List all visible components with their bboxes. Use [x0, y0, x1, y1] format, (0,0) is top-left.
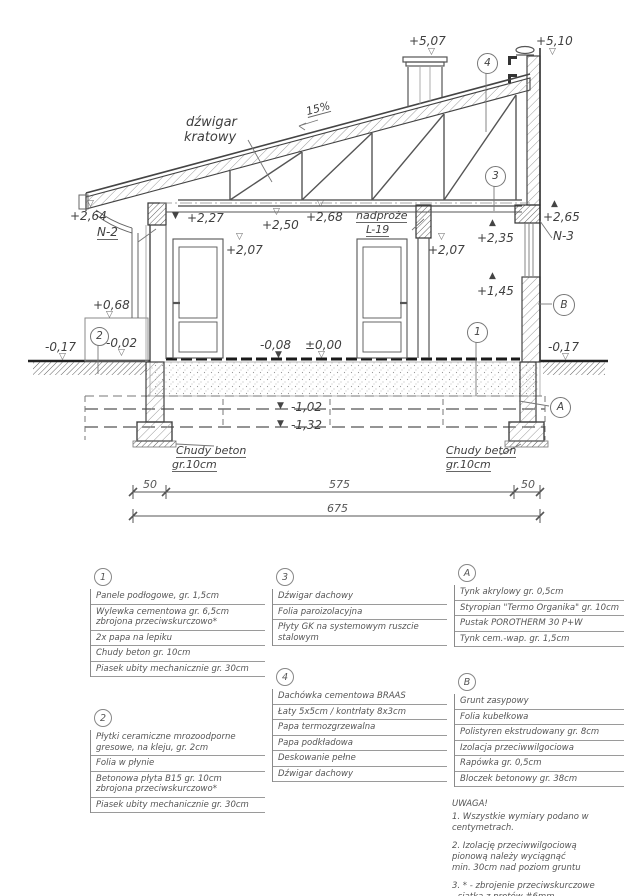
legend-row-text: Dźwigar dachowy — [278, 591, 447, 602]
level-marker-filled-icon: ▼ — [275, 351, 282, 360]
level-marker-open-icon: ▽ — [273, 208, 280, 217]
lintel-label-line1: nadproże — [356, 210, 407, 223]
legend-row-text: Wylewka cementowa gr. 6,5cm — [96, 607, 265, 618]
door-right — [357, 239, 407, 358]
level-marker-open-icon: ▽ — [317, 200, 324, 209]
legend-row-text: Piasek ubity mechanicznie gr. 30cm — [96, 664, 265, 675]
note-2-line2: pionową należy wyciągnąć — [452, 852, 624, 863]
legend-item-2: 2 Płytki ceramiczne mrozoodpornegresowe,… — [88, 709, 265, 813]
left-wall — [146, 203, 166, 362]
legend-circle-B: B — [458, 673, 476, 691]
level-marker-open-icon: ▽ — [118, 349, 125, 358]
legend-row: Folia kubełkowa — [455, 710, 624, 726]
legend-row-text: Płytki ceramiczne mrozoodporne — [96, 732, 265, 743]
level-marker-open-icon: ▽ — [318, 351, 325, 360]
legend-item-A: A Tynk akrylowy gr. 0,5cm Styropian "Ter… — [452, 564, 624, 647]
lean-concrete-label-left-line1: Chudy beton — [176, 445, 246, 458]
legend-row: Deskowanie pełne — [273, 751, 447, 767]
note-3-line2: - siatka z prętów #6mm — [452, 892, 624, 896]
legend-row: Betonowa płyta B15 gr. 10cmzbrojona prze… — [91, 772, 265, 798]
level-marker-filled-icon: ▲ — [489, 272, 496, 281]
label-n3: N-3 — [553, 230, 574, 242]
legend-row-text: zbrojona przeciwskurczowo* — [96, 617, 265, 628]
legend-row-text: Betonowa płyta B15 gr. 10cm — [96, 774, 265, 785]
legend-row: Folia w płynie — [91, 756, 265, 772]
legend-row: Łaty 5x5cm / kontrłaty 8x3cm — [273, 705, 447, 721]
legend-item-1: 1 Panele podłogowe, gr. 1,5cm Wylewka ce… — [88, 568, 265, 677]
legend-row-text: Rapówka gr. 0,5cm — [460, 758, 624, 769]
legend-row: Panele podłogowe, gr. 1,5cm — [91, 589, 265, 605]
dim-575: 575 — [329, 479, 350, 490]
legend-row-text: Tynk akrylowy gr. 0,5cm — [460, 587, 624, 598]
dim-50-left: 50 — [143, 479, 157, 490]
legend-row-text: Grunt zasypowy — [460, 696, 624, 707]
note-2-line1: 2. Izolację przeciwwilgociową — [452, 841, 624, 852]
level-plus250: +2,50 — [262, 219, 299, 231]
callout-4: 4 — [477, 53, 498, 74]
legend-row: Polistyren ekstrudowany gr. 8cm — [455, 725, 624, 741]
level-marker-open-icon: ▽ — [428, 48, 435, 57]
label-n2: N-2 — [97, 226, 118, 240]
legend-row-text: Łaty 5x5cm / kontrłaty 8x3cm — [278, 707, 447, 718]
level-minus102: -1,02 — [291, 401, 322, 413]
legend-row: Dźwigar dachowy — [273, 767, 447, 783]
dim-50-right: 50 — [521, 479, 535, 490]
legend-row-text: stalowym — [278, 633, 447, 644]
legend-row-text: Styropian "Termo Organika" gr. 10cm — [460, 603, 624, 614]
section-linework — [0, 0, 634, 545]
legend-row: Dachówka cementowa BRAAS — [273, 689, 447, 705]
legend-row-text: Polistyren ekstrudowany gr. 8cm — [460, 727, 624, 738]
note-3-line1: 3. * - zbrojenie przeciwskurczowe — [452, 881, 624, 892]
level-plus507: +5,07 — [409, 35, 446, 47]
level-marker-filled-icon: ▼ — [277, 420, 284, 429]
legend-row-text: Folia w płynie — [96, 758, 265, 769]
legend-row: Płytki ceramiczne mrozoodpornegresowe, n… — [91, 730, 265, 756]
legend-row-text: Bloczek betonowy gr. 38cm — [460, 774, 624, 785]
level-marker-filled-icon: ▼ — [172, 212, 179, 221]
legend-row-text: gresowe, na kleju, gr. 2cm — [96, 743, 265, 754]
legend-row-text: Piasek ubity mechanicznie gr. 30cm — [96, 800, 265, 811]
truss-label-line1: dźwigar — [186, 116, 237, 129]
legend-row: Papa termozgrzewalna — [273, 720, 447, 736]
note-1: 1. Wszystkie wymiary podano w centymetra… — [452, 812, 624, 834]
level-plus264: +2,64 — [70, 210, 107, 222]
level-plus510: +5,10 — [536, 35, 573, 47]
legend-row-text: Deskowanie pełne — [278, 753, 447, 764]
legend-row: Tynk cem.-wap. gr. 1,5cm — [455, 632, 624, 648]
lean-concrete-label-right-line1: Chudy beton — [446, 445, 516, 458]
legend-row: Piasek ubity mechanicznie gr. 30cm — [91, 798, 265, 814]
level-marker-filled-icon: ▲ — [551, 200, 558, 209]
level-plus227: +2,27 — [187, 212, 224, 224]
chimney — [403, 57, 447, 107]
lean-concrete-label-left-line2: gr.10cm — [172, 459, 217, 472]
legend-row: Grunt zasypowy — [455, 694, 624, 710]
legend-row-text: 2x papa na lepiku — [96, 633, 265, 644]
level-marker-open-icon: ▽ — [562, 353, 569, 362]
legend-item-4: 4 Dachówka cementowa BRAAS Łaty 5x5cm / … — [270, 668, 447, 782]
legend-circle-4: 4 — [276, 668, 294, 686]
legend-row-text: Dźwigar dachowy — [278, 769, 447, 780]
roof — [79, 74, 530, 211]
level-marker-open-icon: ▽ — [106, 311, 113, 320]
legend-row-text: Papa podkładowa — [278, 738, 447, 749]
level-marker-open-icon: ▽ — [236, 233, 243, 242]
legend-row: Rapówka gr. 0,5cm — [455, 756, 624, 772]
note-2-line3: min. 30cm nad poziom gruntu — [452, 863, 624, 874]
legend-row: Dźwigar dachowy — [273, 589, 447, 605]
legend-column-2: 3 Dźwigar dachowy Folia paroizolacyjna P… — [270, 568, 447, 782]
level-plus268: +2,68 — [306, 211, 343, 223]
legend-row: Wylewka cementowa gr. 6,5cmzbrojona prze… — [91, 605, 265, 631]
legend-row: Płyty GK na systemowym ruszciestalowym — [273, 620, 447, 646]
legend-row: Tynk akrylowy gr. 0,5cm — [455, 585, 624, 601]
legend-row-text: Folia paroizolacyjna — [278, 607, 447, 618]
callout-1: 1 — [467, 322, 488, 343]
legend-item-3: 3 Dźwigar dachowy Folia paroizolacyjna P… — [270, 568, 447, 646]
legend-row-text: Papa termozgrzewalna — [278, 722, 447, 733]
legend-row-text: Tynk cem.-wap. gr. 1,5cm — [460, 634, 624, 645]
legend-column-3: A Tynk akrylowy gr. 0,5cm Styropian "Ter… — [452, 564, 624, 896]
legend-row: Papa podkładowa — [273, 736, 447, 752]
legend-row: Bloczek betonowy gr. 38cm — [455, 772, 624, 788]
level-marker-filled-icon: ▼ — [277, 402, 284, 411]
legend-row: Izolacja przeciwwilgociowa — [455, 741, 624, 757]
legend-row-text: Panele podłogowe, gr. 1,5cm — [96, 591, 265, 602]
note-2: 2. Izolację przeciwwilgociową pionową na… — [452, 841, 624, 874]
legend-row: Styropian "Termo Organika" gr. 10cm — [455, 601, 624, 617]
notes-block: UWAGA! 1. Wszystkie wymiary podano w cen… — [452, 799, 624, 896]
partition-wall — [416, 205, 431, 358]
legend-row-text: Pustak POROTHERM 30 P+W — [460, 618, 624, 629]
legend-row-text: Dachówka cementowa BRAAS — [278, 691, 447, 702]
legend-item-B: B Grunt zasypowy Folia kubełkowa Polisty… — [452, 673, 624, 787]
legend-row: Folia paroizolacyjna — [273, 605, 447, 621]
legend-row: Pustak POROTHERM 30 P+W — [455, 616, 624, 632]
level-plus145: +1,45 — [477, 285, 514, 297]
legend-row-text: Chudy beton gr. 10cm — [96, 648, 265, 659]
level-plus265: +2,65 — [543, 211, 580, 223]
level-marker-open-icon: ▽ — [87, 200, 94, 209]
legend-column-1: 1 Panele podłogowe, gr. 1,5cm Wylewka ce… — [88, 568, 265, 813]
legend-row: Piasek ubity mechanicznie gr. 30cm — [91, 662, 265, 678]
level-marker-open-icon: ▽ — [549, 48, 556, 57]
lintel-label-line2: L-19 — [366, 224, 389, 237]
legend-row-text: Folia kubełkowa — [460, 712, 624, 723]
dim-675: 675 — [327, 503, 348, 514]
door-left — [173, 239, 223, 358]
level-marker-open-icon: ▽ — [59, 353, 66, 362]
note-3: 3. * - zbrojenie przeciwskurczowe - siat… — [452, 881, 624, 896]
legend-circle-2: 2 — [94, 709, 112, 727]
section-drawing-sheet: +5,07 ▽ +5,10 ▽ 4 3 dźwigar kratowy 15% … — [0, 0, 634, 896]
level-minus132: -1,32 — [291, 419, 322, 431]
legend-row: 2x papa na lepiku — [91, 631, 265, 647]
level-marker-filled-icon: ▲ — [489, 219, 496, 228]
legend-row: Chudy beton gr. 10cm — [91, 646, 265, 662]
notes-title: UWAGA! — [452, 799, 624, 810]
callout-B: B — [553, 294, 575, 316]
callout-3: 3 — [485, 166, 506, 187]
legend-circle-1: 1 — [94, 568, 112, 586]
level-plus235: +2,35 — [477, 232, 514, 244]
legend-row-text: zbrojona przeciwskurczowo* — [96, 784, 265, 795]
level-plus207-left: +2,07 — [226, 244, 263, 256]
truss-label-line2: kratowy — [184, 131, 236, 144]
legend-circle-A: A — [458, 564, 476, 582]
legend-row-text: Izolacja przeciwwilgociowa — [460, 743, 624, 754]
level-marker-open-icon: ▽ — [438, 233, 445, 242]
legend-row-text: Płyty GK na systemowym ruszcie — [278, 622, 447, 633]
lean-concrete-label-right-line2: gr.10cm — [446, 459, 491, 472]
legend-circle-3: 3 — [276, 568, 294, 586]
level-plus207-right: +2,07 — [428, 244, 465, 256]
callout-A: A — [550, 397, 571, 418]
